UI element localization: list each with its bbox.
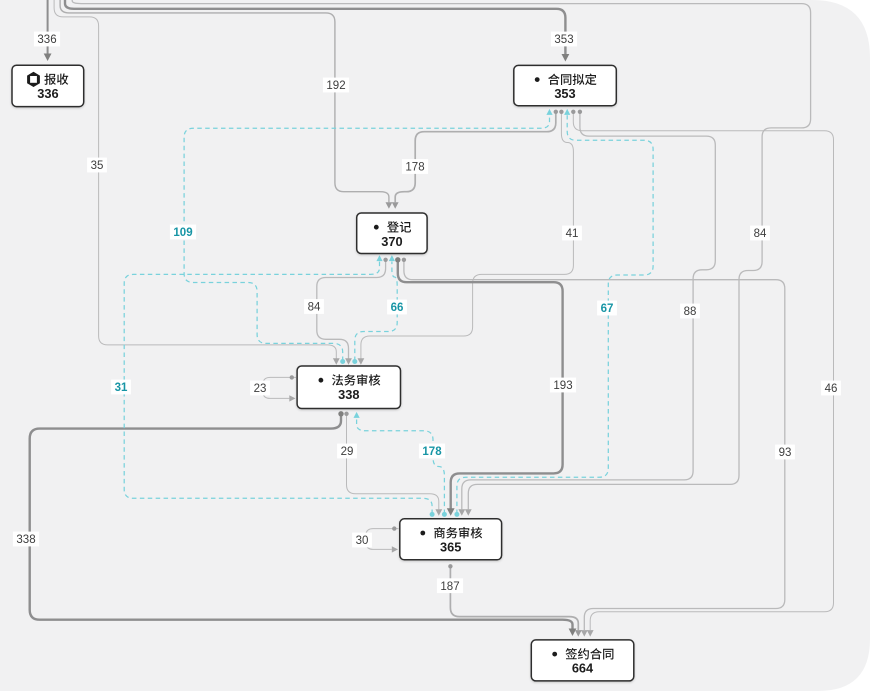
svg-text:370: 370	[381, 234, 402, 249]
svg-text:93: 93	[779, 447, 792, 459]
svg-text:66: 66	[391, 302, 404, 314]
svg-text:31: 31	[115, 382, 128, 394]
svg-text:178: 178	[422, 446, 442, 458]
svg-text:178: 178	[405, 162, 424, 174]
svg-text:187: 187	[440, 581, 459, 593]
svg-text:30: 30	[356, 535, 369, 547]
svg-text:192: 192	[326, 80, 345, 92]
svg-text:109: 109	[173, 227, 192, 239]
svg-text:365: 365	[440, 540, 461, 555]
svg-text:664: 664	[572, 661, 594, 676]
svg-text:353: 353	[554, 86, 575, 101]
svg-text:336: 336	[37, 34, 56, 46]
svg-text:338: 338	[16, 534, 35, 546]
svg-text:29: 29	[341, 446, 354, 458]
svg-text:46: 46	[825, 383, 838, 395]
svg-text:338: 338	[338, 387, 359, 402]
svg-text:23: 23	[254, 383, 267, 395]
svg-text:84: 84	[754, 228, 767, 240]
svg-text:336: 336	[37, 86, 58, 101]
svg-text:88: 88	[684, 306, 697, 318]
svg-text:84: 84	[308, 302, 321, 314]
svg-text:193: 193	[553, 380, 572, 392]
svg-text:67: 67	[601, 303, 614, 315]
svg-text:41: 41	[566, 228, 579, 240]
svg-text:35: 35	[91, 160, 104, 172]
svg-text:353: 353	[554, 34, 573, 46]
